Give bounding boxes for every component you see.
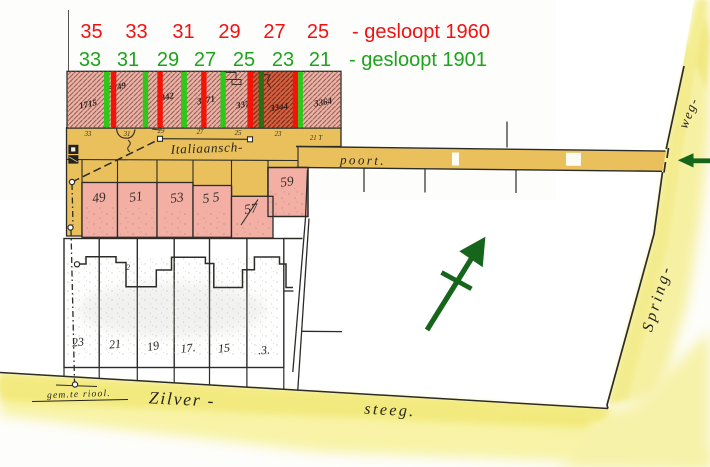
svg-text:53: 53 (169, 189, 185, 206)
svg-text:2: 2 (126, 263, 130, 272)
svg-text:Zilver -: Zilver - (148, 387, 215, 410)
svg-text:51: 51 (128, 188, 143, 205)
svg-text:27: 27 (194, 49, 216, 71)
svg-text:poort.: poort. (339, 152, 386, 168)
svg-text:5 5: 5 5 (202, 189, 221, 206)
svg-text:33: 33 (125, 21, 147, 43)
svg-text:49: 49 (91, 189, 107, 206)
svg-text:- gesloopt 1901: - gesloopt 1901 (349, 49, 487, 71)
svg-text:19: 19 (146, 338, 160, 354)
svg-text:17.: 17. (180, 340, 196, 355)
svg-text:29: 29 (157, 49, 179, 71)
svg-text:.3.: .3. (258, 343, 271, 358)
svg-text:Italiaansch-: Italiaansch- (169, 139, 243, 157)
svg-text:33: 33 (79, 49, 101, 71)
svg-text:23: 23 (272, 49, 294, 71)
svg-text:23: 23 (275, 131, 282, 138)
svg-text:27: 27 (263, 21, 285, 43)
svg-text:15: 15 (217, 340, 230, 355)
svg-text:29: 29 (218, 21, 240, 43)
svg-text:21: 21 (309, 49, 331, 71)
svg-text:31: 31 (117, 49, 139, 71)
svg-text:31: 31 (172, 21, 194, 43)
svg-text:21 T: 21 T (310, 135, 323, 142)
svg-text:25: 25 (235, 130, 242, 137)
svg-text:33: 33 (84, 131, 92, 138)
svg-text:- gesloopt 1960: - gesloopt 1960 (352, 21, 490, 43)
svg-text:25: 25 (233, 49, 255, 71)
svg-text:steeg.: steeg. (364, 401, 416, 421)
svg-text:27: 27 (197, 129, 204, 136)
svg-text:59: 59 (279, 173, 295, 190)
svg-text:29: 29 (158, 128, 165, 135)
svg-text:35: 35 (80, 21, 102, 43)
svg-text:31: 31 (123, 131, 131, 138)
svg-text:21: 21 (108, 336, 121, 351)
svg-text:25: 25 (307, 21, 329, 43)
